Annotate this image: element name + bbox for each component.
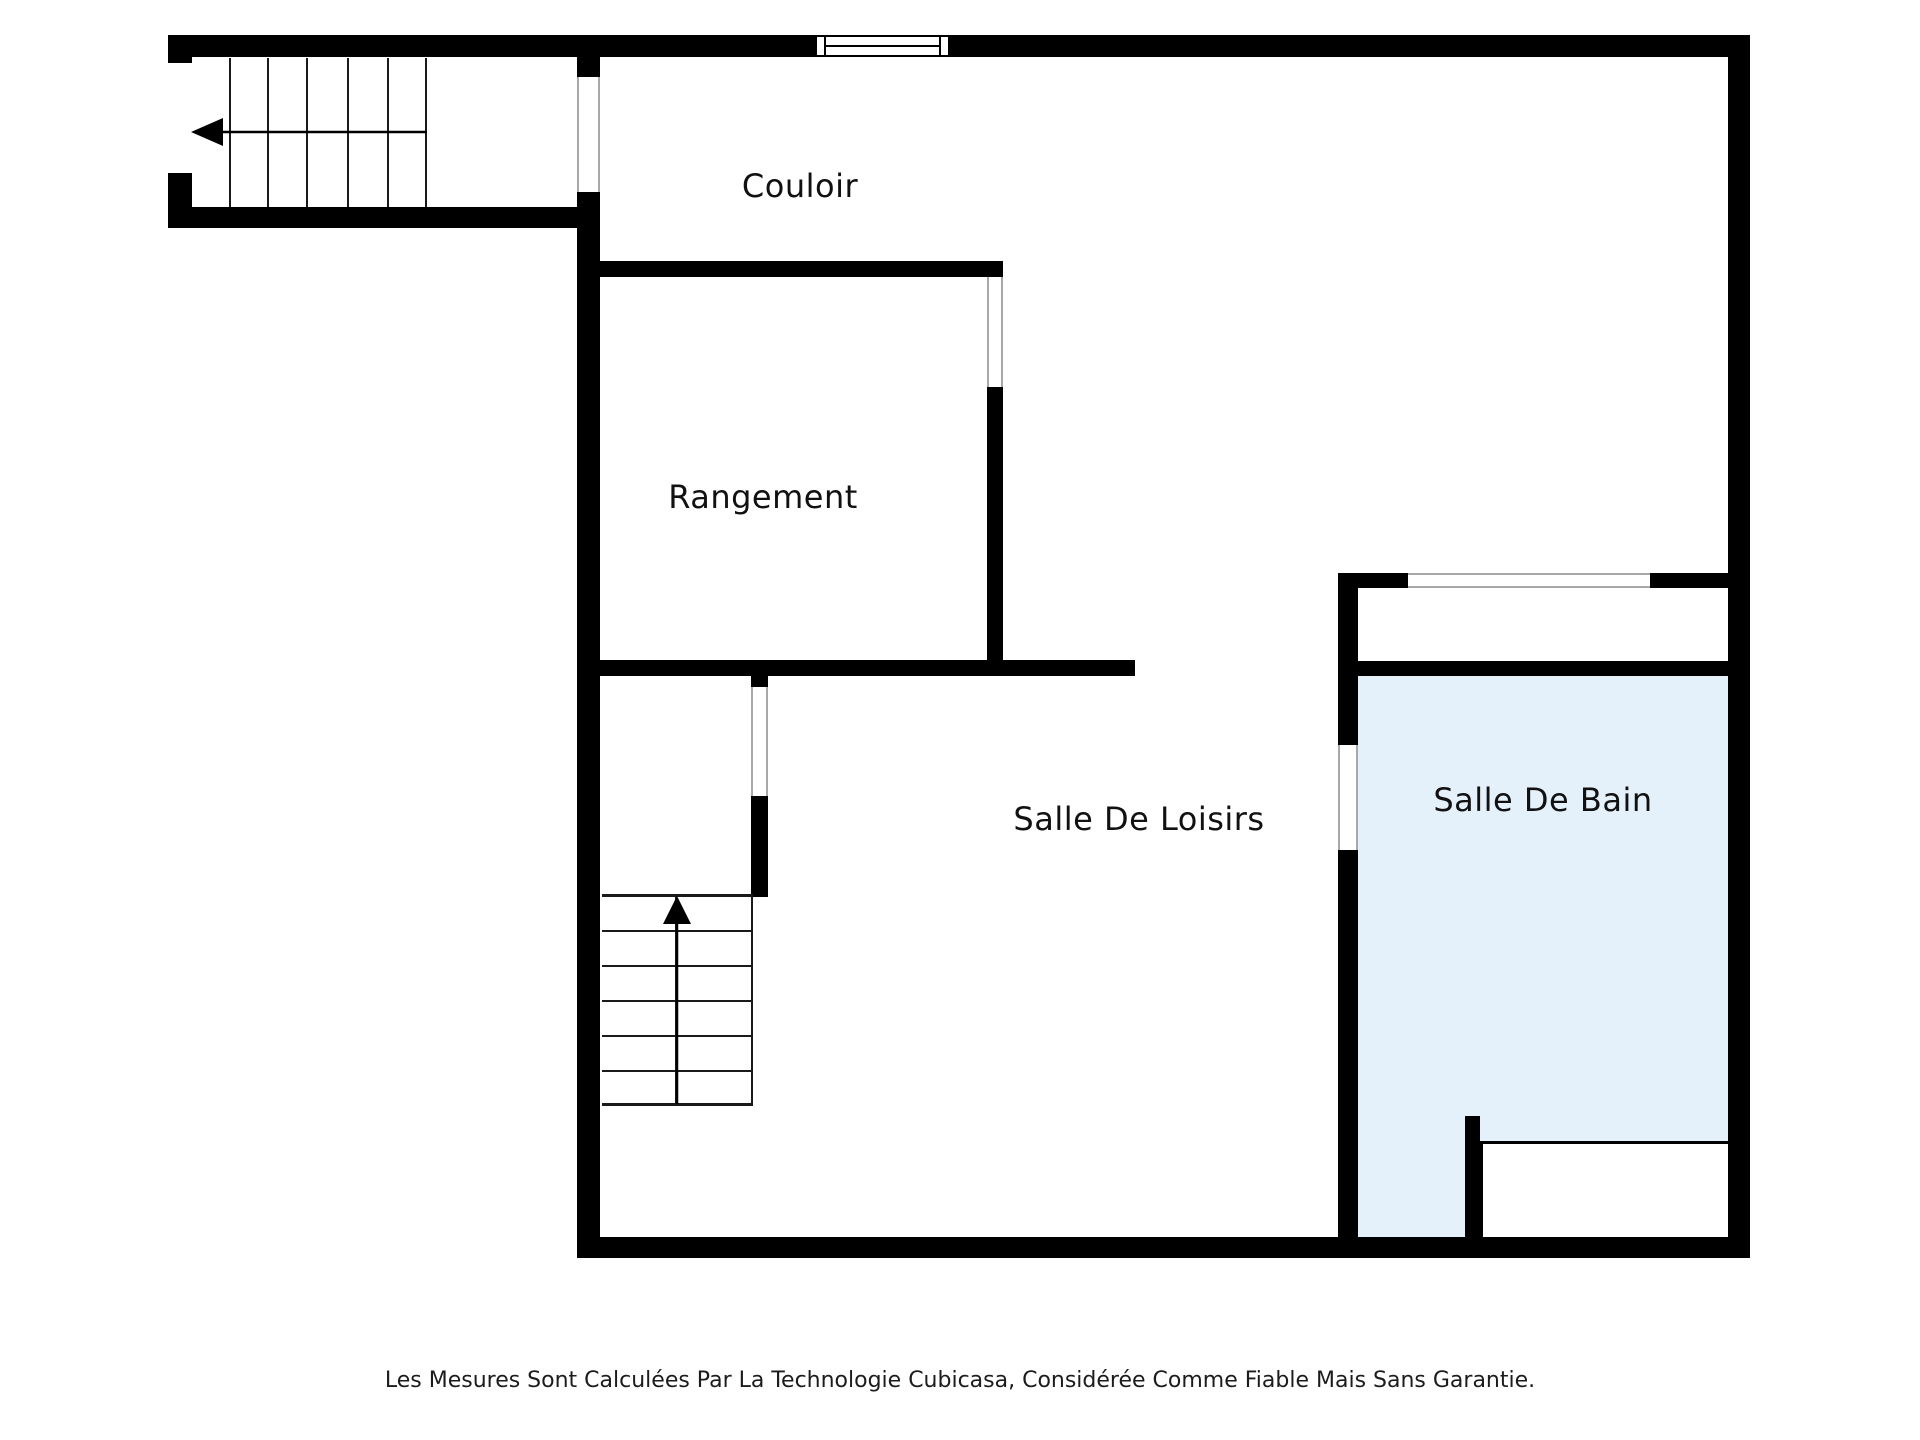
door-mid-jamb-right <box>766 687 768 796</box>
stair-edge-line <box>751 894 753 1106</box>
door-alcove-jamb-top <box>1408 573 1650 575</box>
wall-alcove-top-left <box>1338 573 1408 588</box>
wall-bottom-exterior <box>577 1237 1750 1258</box>
wall-right-exterior <box>1728 35 1750 1258</box>
wall-alcove-top-right <box>1650 573 1728 588</box>
wall-bain-left-upper <box>1338 573 1358 745</box>
door-stairwell-jamb-left <box>577 77 579 192</box>
disclaimer-text: Les Mesures Sont Calculées Par La Techno… <box>385 1368 1535 1393</box>
bathroom-counter <box>1480 1141 1728 1237</box>
wall-top-exterior <box>168 35 1750 57</box>
floorplan-canvas: Couloir Rangement Salle De Loisirs Salle… <box>0 0 1920 1440</box>
door-mid-jamb-left <box>751 687 753 796</box>
window-mullion-right <box>939 37 941 55</box>
wall-middoor-stub <box>751 676 768 687</box>
wall-rangement-top <box>599 261 1003 277</box>
door-alcove-jamb-bottom <box>1408 586 1650 588</box>
room-label-couloir: Couloir <box>742 167 858 205</box>
wall-stairwell-divider-stub <box>577 57 600 77</box>
wall-rangement-right <box>987 387 1003 676</box>
wall-left-exterior <box>577 192 600 1258</box>
door-stairwell-jamb-right <box>598 77 600 192</box>
door-bain-jamb-left <box>1338 745 1340 850</box>
room-label-bain: Salle De Bain <box>1433 781 1652 819</box>
door-rangement-jamb-right <box>1001 277 1003 387</box>
wall-stairwell-bottom <box>168 207 600 228</box>
door-rangement-jamb-left <box>987 277 989 387</box>
window-glass-line <box>826 45 939 47</box>
room-label-loisirs: Salle De Loisirs <box>1013 800 1264 838</box>
wall-middoor-lower <box>751 796 768 897</box>
room-label-rangement: Rangement <box>668 478 858 516</box>
door-bain-jamb-right <box>1356 745 1358 850</box>
wall-bain-counter-stub <box>1465 1116 1480 1237</box>
wall-bain-left-lower <box>1338 850 1358 1237</box>
wall-bain-top <box>1338 661 1750 676</box>
wall-stairwell-left-upper <box>168 35 192 63</box>
up-arrow-icon <box>659 890 695 1110</box>
wall-loisirs-top <box>577 660 1135 676</box>
window-icon <box>815 35 950 57</box>
left-arrow-icon <box>185 114 435 150</box>
